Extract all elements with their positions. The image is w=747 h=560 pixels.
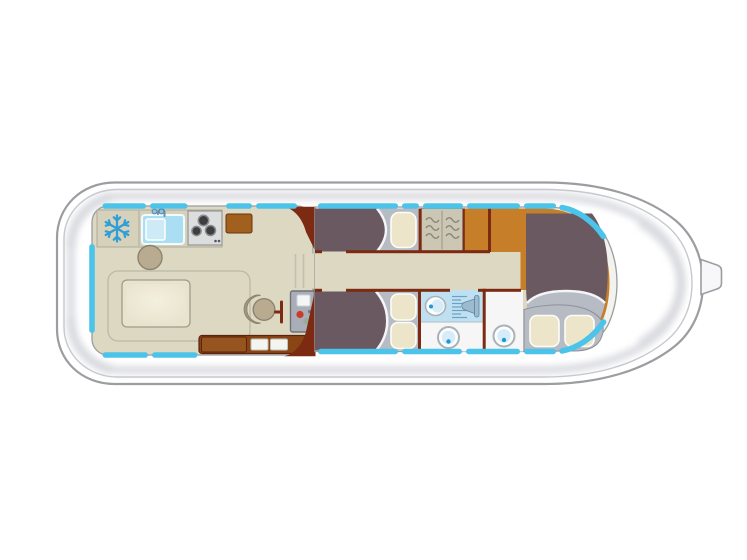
wc-room-forward (484, 290, 523, 352)
tap-dot (429, 305, 433, 309)
console-screen (297, 295, 310, 306)
pillow (391, 213, 416, 248)
corridor-floor (315, 252, 521, 290)
sink-bowl (146, 219, 165, 240)
dining-table-top (126, 284, 186, 323)
washbasin-inner (431, 299, 443, 312)
window-strip (402, 349, 462, 355)
wall (346, 289, 450, 292)
floor-plan-canvas (0, 0, 747, 560)
tap-handle (159, 209, 164, 214)
entry-cabinet (202, 337, 247, 352)
wall (346, 250, 490, 253)
forward-cabins (315, 203, 617, 354)
console-red-button (296, 311, 303, 318)
sink-icon (142, 209, 184, 244)
window-strip (466, 349, 520, 355)
pillow (530, 316, 559, 347)
entry-door (251, 339, 268, 350)
port-cabin (315, 209, 418, 252)
wc-room-aft (421, 322, 484, 352)
window-strip (524, 203, 556, 209)
pillow (391, 323, 416, 349)
tap-dot (446, 339, 450, 343)
stove-icon (188, 211, 222, 245)
window-strip (524, 349, 556, 355)
wardrobe (422, 209, 463, 252)
window-strip (103, 203, 147, 209)
window-strip (150, 203, 188, 209)
bow-cleat-icon (701, 260, 722, 295)
tap-handle (152, 209, 157, 214)
wall (483, 289, 486, 352)
helm-seat (253, 299, 275, 321)
tap-dot (502, 338, 506, 342)
wall (315, 289, 322, 292)
shower-handle (475, 296, 480, 318)
burner-icon (192, 226, 201, 235)
window-strip (318, 203, 398, 209)
window-strip (152, 352, 198, 358)
wall (488, 209, 491, 253)
window-strip (89, 244, 95, 333)
window-strip (402, 203, 419, 209)
burner-icon (206, 226, 216, 236)
entry-door (271, 339, 288, 350)
stove-knob (218, 240, 221, 243)
wall (419, 209, 422, 252)
starboard-cabin (315, 292, 418, 351)
stove-knob (214, 240, 217, 243)
pillow (391, 294, 416, 320)
boat-floor-plan (0, 0, 747, 560)
burner-icon (198, 215, 208, 225)
sideboard-cabinet (226, 214, 252, 233)
window-strip (318, 349, 398, 355)
window-strip (423, 203, 463, 209)
window-strip (103, 352, 149, 358)
round-stool-icon (138, 246, 162, 270)
window-strip (467, 203, 520, 209)
window-strip (226, 203, 252, 209)
wall (463, 209, 465, 253)
wall (418, 292, 421, 352)
washbasin-icon (426, 297, 446, 316)
saloon-galley (89, 203, 320, 358)
shower-room (421, 290, 484, 322)
window-strip (256, 203, 297, 209)
wall (315, 250, 322, 253)
